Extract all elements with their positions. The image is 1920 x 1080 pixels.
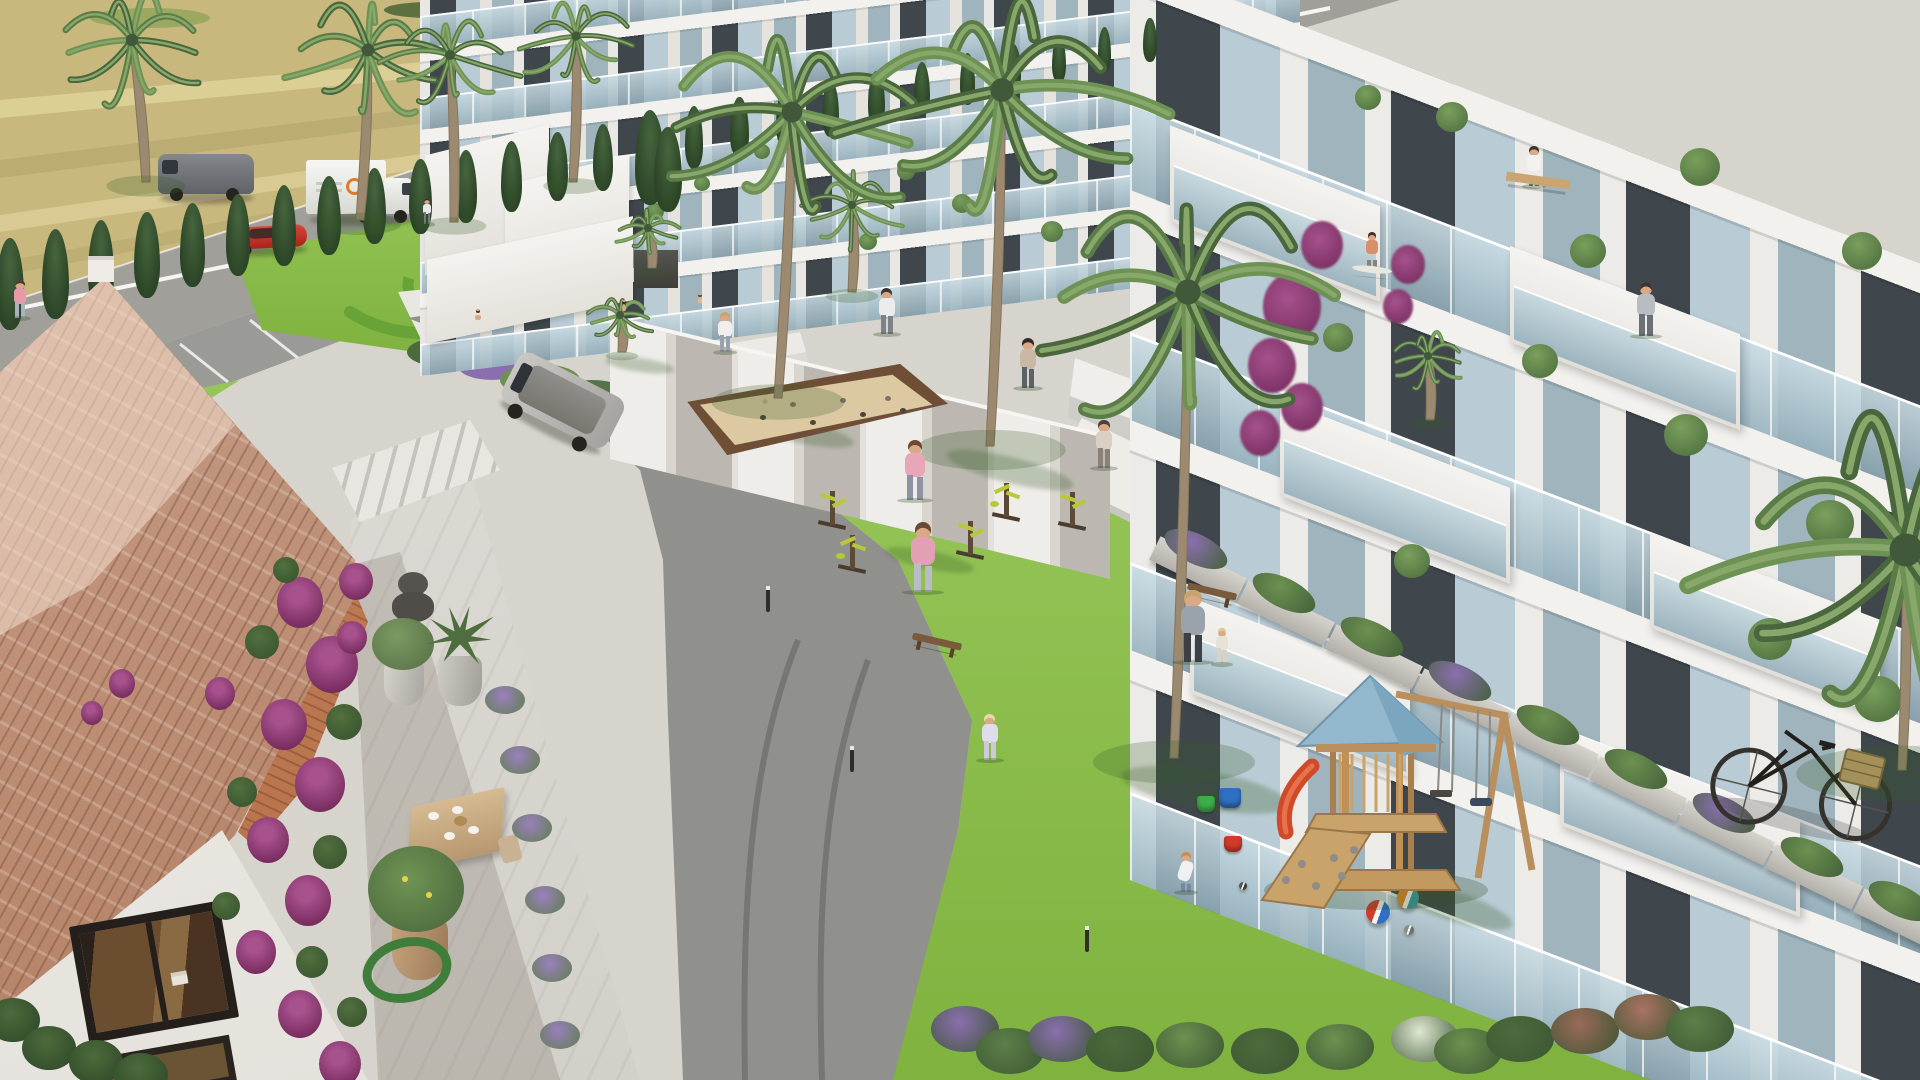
statue xyxy=(398,572,428,596)
plate xyxy=(468,826,479,834)
plate xyxy=(428,812,439,820)
bougainvillea xyxy=(247,817,289,863)
vine-foliage xyxy=(273,557,299,583)
terrace-planter-box xyxy=(634,250,678,288)
bougainvillea xyxy=(81,701,103,725)
truck-windshield xyxy=(402,183,412,195)
olive-tree xyxy=(372,618,434,670)
swing-beam xyxy=(1396,694,1508,716)
cypress-tree xyxy=(42,229,69,319)
lavender-bush xyxy=(532,954,572,982)
person xyxy=(980,714,999,760)
bougainvillea xyxy=(339,563,373,600)
bougainvillea xyxy=(319,1041,361,1080)
border-shrub xyxy=(976,1028,1044,1074)
truck-logo xyxy=(362,178,379,195)
lavender-bush xyxy=(512,814,552,842)
garden-hose xyxy=(356,928,459,1012)
bougainvillea xyxy=(337,621,367,654)
delivery-truck xyxy=(306,156,416,228)
car-glass xyxy=(248,227,282,239)
bench-leg xyxy=(949,648,955,658)
olive-pot xyxy=(384,660,424,706)
corner-plant xyxy=(22,1026,76,1070)
van-windshield xyxy=(162,160,178,174)
person-leg xyxy=(925,566,932,592)
cypress-tree xyxy=(88,220,114,308)
bougainvillea xyxy=(261,699,307,750)
cypress-tree xyxy=(180,203,205,287)
house-lower-window xyxy=(97,1035,237,1080)
swing-seat xyxy=(1430,790,1452,797)
person-head xyxy=(15,280,24,289)
person-shadow xyxy=(9,316,31,321)
bougainvillea xyxy=(306,636,358,693)
gym-seat xyxy=(836,553,845,559)
bougainvillea xyxy=(295,757,345,812)
gym-arm xyxy=(840,536,856,546)
chimney xyxy=(88,260,114,282)
gray-van xyxy=(158,148,254,204)
corner-plant xyxy=(0,998,40,1042)
plate xyxy=(444,832,455,840)
person-leg xyxy=(15,302,19,318)
red-car xyxy=(230,220,308,258)
person-shadow xyxy=(902,590,943,595)
bougainvillea xyxy=(109,669,135,698)
vine-foliage xyxy=(313,835,347,869)
lavender-bush xyxy=(485,686,525,714)
lavender-bush xyxy=(540,1021,580,1049)
person-torso xyxy=(14,288,27,303)
vine-foliage xyxy=(227,777,257,807)
bread-basket xyxy=(454,816,467,826)
vine-foliage xyxy=(212,892,240,920)
lavender-bush xyxy=(500,746,540,774)
corner-plant xyxy=(69,1040,123,1080)
cypress-tree xyxy=(134,212,160,298)
cypress-tree xyxy=(0,238,24,330)
park-bench xyxy=(912,632,962,650)
person-leg xyxy=(991,742,996,760)
yucca-pot xyxy=(438,656,482,706)
person-head xyxy=(984,714,995,725)
bougainvillea xyxy=(205,677,235,710)
border-shrub xyxy=(1028,1016,1096,1062)
light-bollard xyxy=(850,746,854,772)
lavender-bush xyxy=(525,886,565,914)
bougainvillea xyxy=(277,577,323,628)
vine-foliage xyxy=(296,946,328,978)
person-leg xyxy=(21,303,25,318)
chair xyxy=(396,847,418,874)
wooden-playground xyxy=(1246,618,1546,918)
gym-arm xyxy=(852,543,867,552)
tree-shadow xyxy=(884,542,976,578)
person-leg xyxy=(914,563,921,592)
border-shrub xyxy=(931,1006,999,1052)
person-torso xyxy=(982,724,997,742)
gym-base xyxy=(838,564,866,574)
person-torso xyxy=(911,537,935,565)
light-bollard xyxy=(1085,926,1089,952)
corner-plant xyxy=(114,1053,168,1080)
person-shadow xyxy=(976,758,1003,763)
outdoor-gym-machine xyxy=(836,531,870,573)
vine-foliage xyxy=(326,704,362,740)
statue xyxy=(392,592,434,622)
person xyxy=(12,280,28,318)
dining-table xyxy=(407,787,505,871)
bench-leg xyxy=(916,641,922,651)
plate xyxy=(452,806,463,814)
yucca-plant xyxy=(426,606,494,664)
lemon-tree-pot xyxy=(392,918,448,980)
parking-lines xyxy=(40,272,438,430)
chair xyxy=(497,834,523,864)
truck-logo xyxy=(346,178,363,195)
aerial-rendering-scene xyxy=(0,0,1920,1080)
light-bollard xyxy=(766,586,770,612)
gym-base xyxy=(818,520,846,530)
gym-base xyxy=(956,550,984,560)
bougainvillea xyxy=(278,990,322,1038)
house-window xyxy=(69,901,239,1044)
swing-seat xyxy=(1470,798,1492,806)
bougainvillea xyxy=(236,930,276,974)
vine-foliage xyxy=(337,997,367,1027)
lemon-tree xyxy=(368,846,464,932)
bougainvillea xyxy=(285,875,331,926)
person-leg xyxy=(984,741,989,760)
vine-foliage xyxy=(245,625,279,659)
gym-post xyxy=(850,535,855,569)
